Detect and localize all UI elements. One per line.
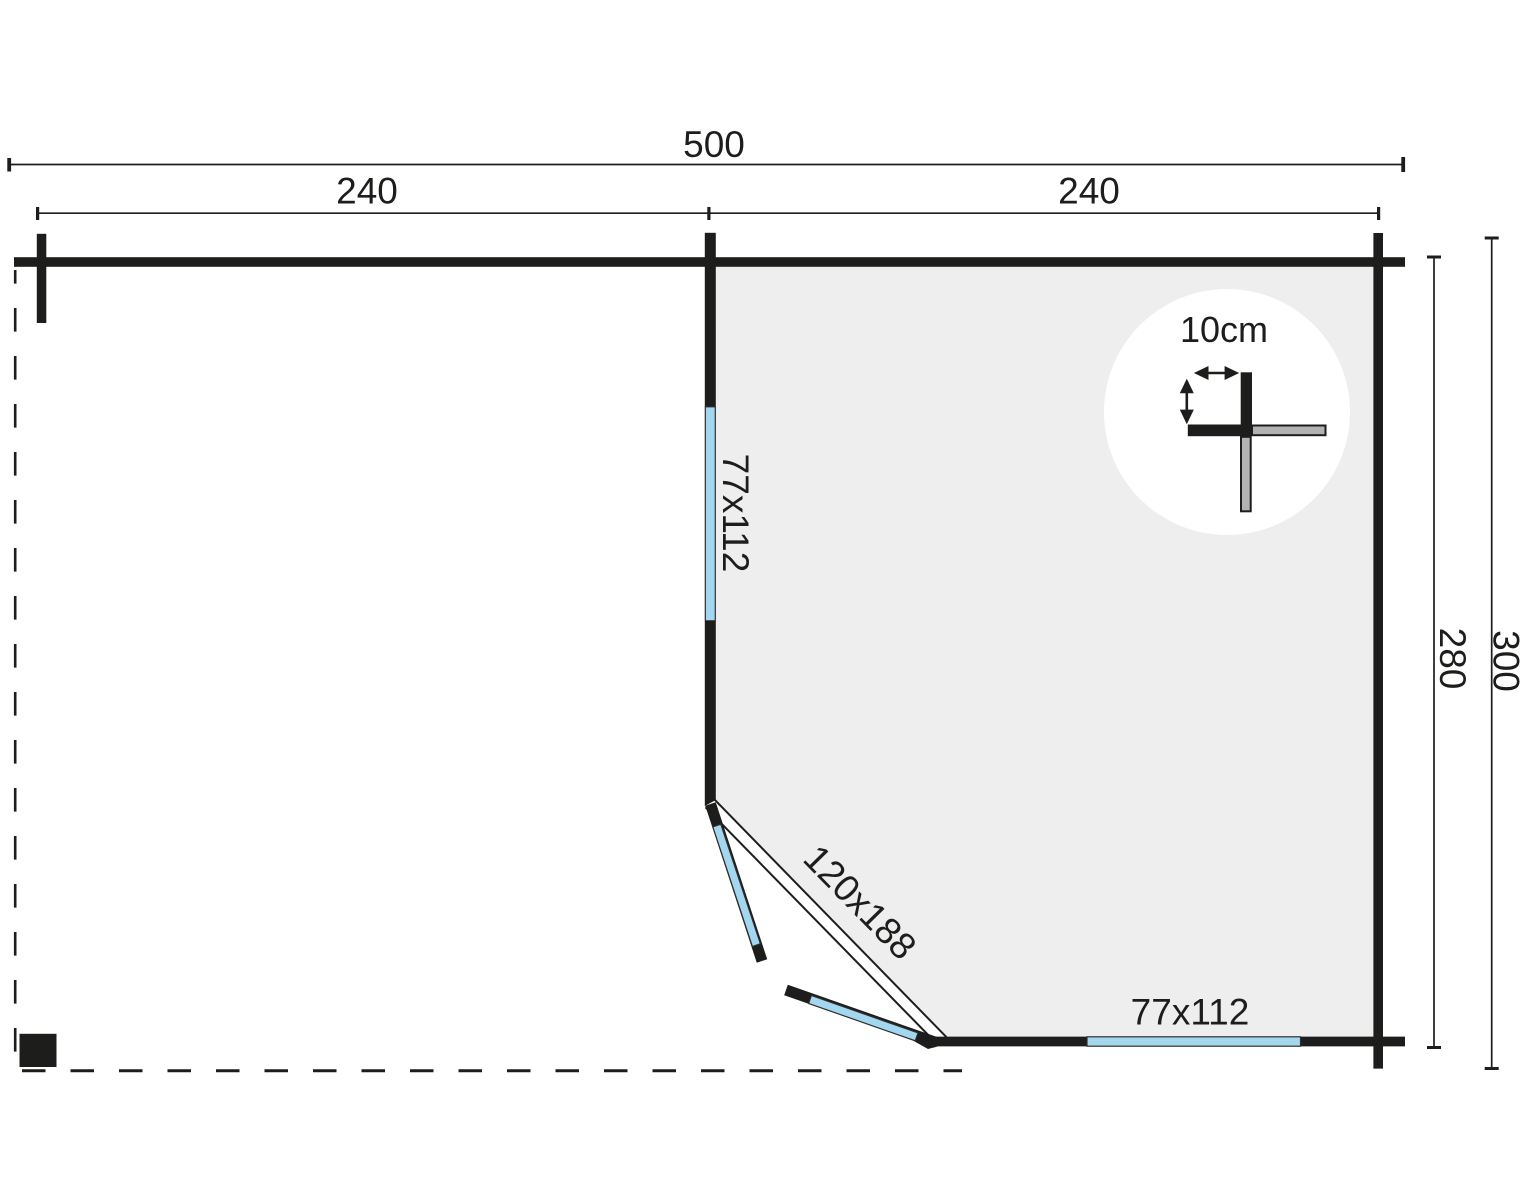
svg-text:280: 280 [1432, 628, 1473, 690]
svg-text:77x112: 77x112 [715, 454, 756, 573]
svg-text:300: 300 [1486, 630, 1527, 692]
svg-text:240: 240 [1058, 171, 1120, 212]
svg-text:10cm: 10cm [1180, 309, 1268, 350]
svg-text:500: 500 [683, 124, 745, 165]
svg-text:240: 240 [336, 171, 398, 212]
svg-text:77x112: 77x112 [1131, 992, 1250, 1033]
